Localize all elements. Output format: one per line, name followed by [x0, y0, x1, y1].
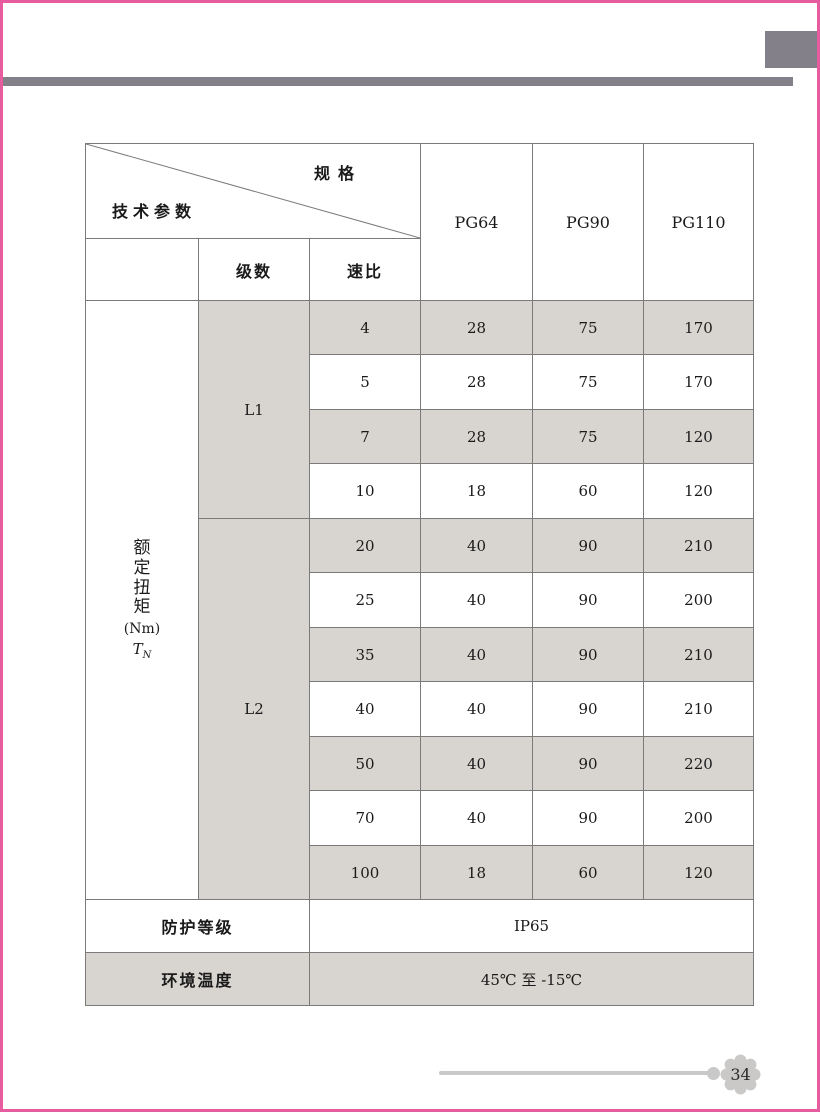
spec-header-label: 规格	[314, 160, 362, 184]
pg64-cell: 40	[421, 573, 533, 628]
subheader-stages: 级数	[199, 239, 310, 301]
ratio-cell: 70	[310, 791, 421, 846]
pg110-cell: 200	[644, 791, 754, 846]
pg90-cell: 75	[533, 355, 644, 410]
rated-torque-unit: (Nm)	[124, 621, 160, 637]
column-header-pg90: PG90	[533, 144, 644, 301]
pg90-cell: 90	[533, 573, 644, 628]
ambient-temp-value: 45℃ 至 -15℃	[310, 953, 754, 1006]
page-number: 34	[717, 1051, 764, 1098]
footer-rule	[439, 1071, 711, 1075]
pg64-cell: 28	[421, 410, 533, 464]
pg64-cell: 28	[421, 301, 533, 355]
pg90-cell: 75	[533, 410, 644, 464]
pg64-cell: 40	[421, 519, 533, 573]
ratio-cell: 20	[310, 519, 421, 573]
pg90-cell: 75	[533, 301, 644, 355]
pg110-cell: 220	[644, 737, 754, 791]
column-header-pg110: PG110	[644, 144, 754, 301]
rated-torque-vertical-label: 额定扭矩	[133, 539, 151, 617]
ratio-cell: 25	[310, 573, 421, 628]
pg110-cell: 170	[644, 301, 754, 355]
page-number-badge: 34	[717, 1051, 764, 1098]
pg110-cell: 120	[644, 410, 754, 464]
top-gray-bar	[3, 77, 793, 86]
spec-table: 规格 技术参数 PG64 PG90 PG110 级数 速比 额定扭矩 (Nm) …	[85, 143, 754, 1006]
pg110-cell: 120	[644, 464, 754, 519]
pg64-cell: 18	[421, 464, 533, 519]
pg110-cell: 210	[644, 519, 754, 573]
subheader-ratio: 速比	[310, 239, 421, 301]
pg64-cell: 18	[421, 846, 533, 900]
pg64-cell: 40	[421, 791, 533, 846]
ratio-cell: 35	[310, 628, 421, 682]
pg110-cell: 120	[644, 846, 754, 900]
top-right-gray-square	[765, 31, 817, 68]
ratio-cell: 4	[310, 301, 421, 355]
stage-group-l1: L1	[199, 301, 310, 519]
pg64-cell: 28	[421, 355, 533, 410]
pg90-cell: 90	[533, 682, 644, 737]
protection-grade-label: 防护等级	[86, 900, 310, 953]
diagonal-line	[86, 144, 420, 238]
pg90-cell: 60	[533, 846, 644, 900]
pg90-cell: 90	[533, 628, 644, 682]
diagonal-header-cell: 规格 技术参数	[86, 144, 421, 239]
catalog-page: 规格 技术参数 PG64 PG90 PG110 级数 速比 额定扭矩 (Nm) …	[0, 0, 820, 1112]
pg110-cell: 210	[644, 628, 754, 682]
ambient-temp-label: 环境温度	[86, 953, 310, 1006]
pg90-cell: 90	[533, 737, 644, 791]
pg64-cell: 40	[421, 628, 533, 682]
rated-torque-symbol: TN	[133, 640, 152, 661]
pg64-cell: 40	[421, 737, 533, 791]
ratio-cell: 100	[310, 846, 421, 900]
pg110-cell: 200	[644, 573, 754, 628]
ratio-cell: 10	[310, 464, 421, 519]
stage-group-l2: L2	[199, 519, 310, 900]
pg90-cell: 60	[533, 464, 644, 519]
subheader-empty-cell	[86, 239, 199, 301]
protection-grade-value: IP65	[310, 900, 754, 953]
ratio-cell: 40	[310, 682, 421, 737]
pg90-cell: 90	[533, 791, 644, 846]
ratio-cell: 7	[310, 410, 421, 464]
pg90-cell: 90	[533, 519, 644, 573]
rated-torque-cell: 额定扭矩 (Nm) TN	[86, 301, 199, 900]
pg64-cell: 40	[421, 682, 533, 737]
column-header-pg64: PG64	[421, 144, 533, 301]
ratio-cell: 5	[310, 355, 421, 410]
pg110-cell: 210	[644, 682, 754, 737]
tech-param-header-label: 技术参数	[112, 198, 196, 222]
ratio-cell: 50	[310, 737, 421, 791]
pg110-cell: 170	[644, 355, 754, 410]
